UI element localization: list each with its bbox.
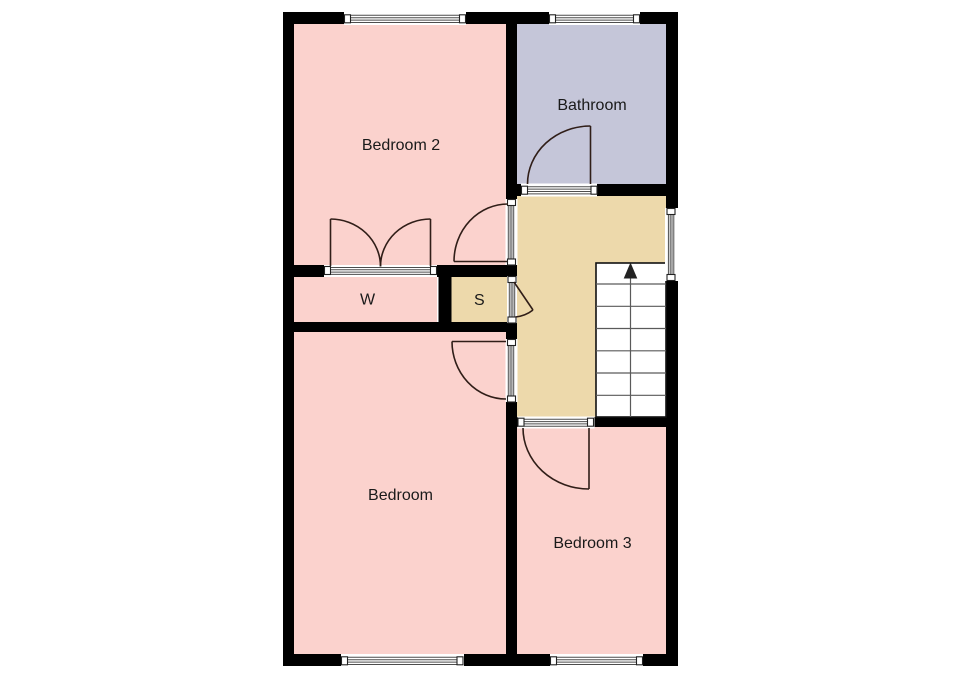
svg-text:Bedroom: Bedroom <box>368 487 433 504</box>
svg-text:Bedroom 2: Bedroom 2 <box>362 137 440 154</box>
svg-text:Bathroom: Bathroom <box>557 97 626 114</box>
svg-text:W: W <box>360 291 376 308</box>
svg-text:S: S <box>474 292 485 309</box>
svg-text:Bedroom 3: Bedroom 3 <box>553 535 631 552</box>
